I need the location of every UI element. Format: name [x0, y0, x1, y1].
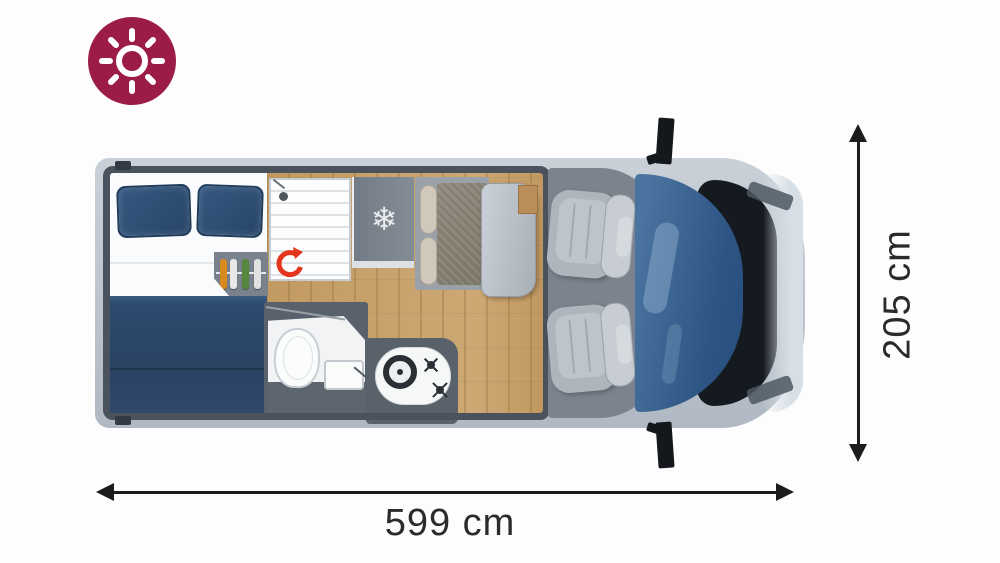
width-dimension-label: 205 cm [877, 225, 920, 365]
van-top-view: ❄ [95, 158, 805, 428]
length-dimension-label: 599 cm [300, 502, 600, 545]
rear-door-hinge-bottom [115, 416, 131, 425]
side-mirror-bottom [647, 416, 683, 468]
side-mirror-top [647, 118, 683, 170]
arrow-head-right [776, 483, 794, 501]
arrow-head-left [96, 483, 114, 501]
cab-seat-driver [541, 299, 640, 397]
sun-icon [88, 17, 176, 105]
length-arrow-line [108, 491, 780, 494]
b-pillar-cabinet [518, 185, 538, 214]
interior-walls [103, 166, 550, 420]
cab-seat-passenger [541, 186, 640, 284]
arrow-head-top [849, 124, 867, 142]
windshield-reflection [641, 221, 681, 316]
rear-door-hinge-top [115, 161, 131, 170]
arrow-head-bottom [849, 444, 867, 462]
width-arrow-line [857, 138, 860, 448]
windshield-reflection-2 [661, 323, 683, 384]
sun-badge [88, 17, 176, 105]
campervan-floorplan: ❄ [0, 0, 1000, 563]
